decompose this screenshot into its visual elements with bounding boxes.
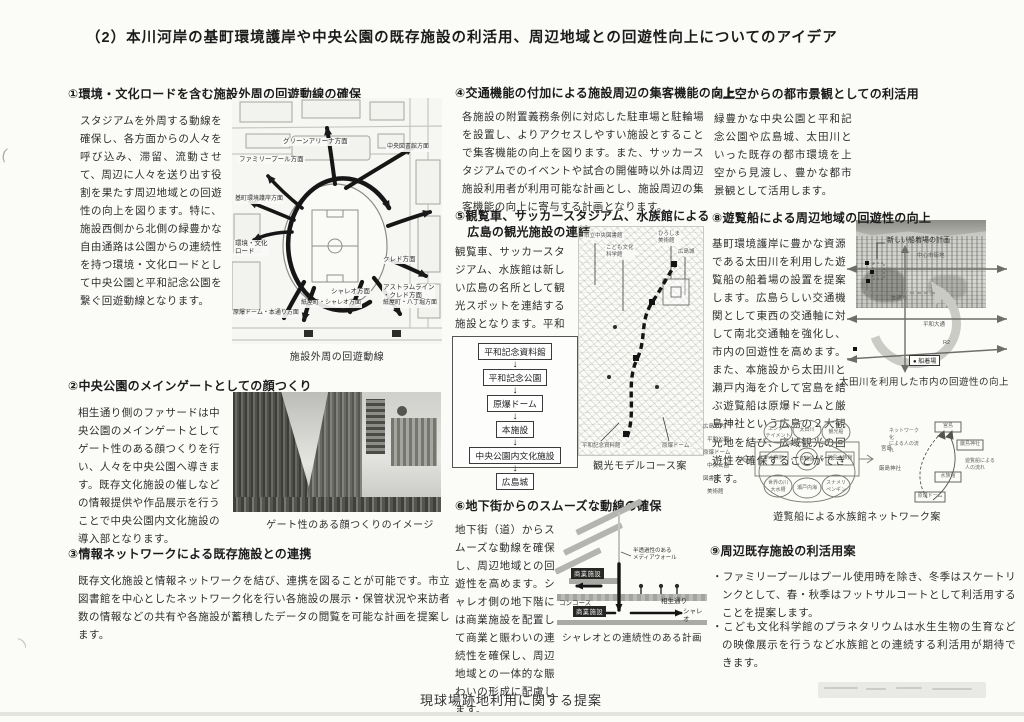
flow-arrow: ↓ bbox=[513, 412, 518, 421]
network-left-node: 原爆ドーム bbox=[703, 450, 730, 457]
stamp-mark bbox=[932, 688, 972, 690]
photo-tower bbox=[366, 399, 385, 454]
network-flow-box: 原爆ドーム bbox=[915, 493, 945, 500]
label-new-pier: 新しい船着場の計画 bbox=[887, 237, 950, 246]
section2-body: 相生通り側のファサードは中央公園のメインゲートとしてゲート性のある顔つくりを行い… bbox=[78, 404, 220, 548]
label-commercial-lower: 商業施設 bbox=[573, 606, 606, 617]
model-course-route bbox=[579, 227, 703, 455]
network-box-left: 新水族館 bbox=[760, 455, 788, 462]
network-caption: 遊覧船による水族館ネットワーク案 bbox=[742, 508, 972, 523]
map2-label-museum: ひろしま 美術館 bbox=[657, 231, 681, 246]
stadium-circulation-map: グリーンアリーナ方面 中央図書館方面 ファミリープール方面 基町環境護岸方面 環… bbox=[232, 98, 442, 344]
section4-body: 各施設の附置義務条例に対応した駐車場と駐輪場を設置し、よりアクセスしやすい施設と… bbox=[462, 108, 704, 216]
aquarium-network-diagram: 広島市内 平和公園 原爆ドーム 中央公園 図書館 美術館 宮島 厳島神社 新水族… bbox=[703, 420, 1013, 508]
map1-label-green-arena: グリーンアリーナ方面 bbox=[282, 138, 349, 146]
map1-label-kamiyacho-hatchobori: 紙屋町・八丁堀方面 bbox=[382, 300, 438, 308]
section3-body: 既存文化施設と情報ネットワークを結び、連携を図ることが可能です。市立図書館を中心… bbox=[78, 572, 450, 644]
page-title: （2）本川河岸の基町環境護岸や中央公園の既存施設の利活用、周辺地域との回遊性向上… bbox=[86, 26, 838, 47]
map1-label-motomachi: 基町環境護岸方面 bbox=[234, 196, 284, 204]
map1-label-kamiyacho-chareo: 紙屋町・シャレオ方面 bbox=[300, 300, 362, 308]
photo2-caption: ゲート性のある顔つくりのイメージ bbox=[250, 516, 450, 531]
network-flow-annotation: ネットワーク化 による人の流れ bbox=[889, 428, 923, 454]
network-ellipse-label: 太田川 bbox=[793, 427, 821, 434]
label-hondori: 本通り bbox=[891, 296, 908, 303]
network-left-node: 中央公園 bbox=[707, 463, 729, 470]
section4-heading: ④交通機能の付加による施設周辺の集客機能の向上 bbox=[455, 85, 736, 101]
section3-heading: ③情報ネットワークによる既存施設との連携 bbox=[68, 546, 312, 562]
flow-step-1: 平和記念資料館 bbox=[478, 343, 552, 360]
scan-bottom-edge bbox=[0, 712, 1024, 716]
scanned-proposal-page: （2）本川河岸の基町環境護岸や中央公園の既存施設の利活用、周辺地域との回遊性向上… bbox=[0, 0, 1024, 722]
gate-facade-photo bbox=[233, 392, 441, 512]
flow-arrow: ↓ bbox=[513, 464, 518, 473]
network-ellipse-label: 世界の川 大水槽 bbox=[764, 480, 792, 493]
network-left-node: 図書館 bbox=[703, 476, 720, 483]
section9-bullet-2: ・こども文化科学館のプラネタリウムは水生生物の生育などの映像展示を行うなど水族館… bbox=[712, 618, 1016, 672]
network-ellipse-label: スナメリ ペンギン bbox=[822, 480, 850, 493]
network-left-node: 広島市内 bbox=[703, 424, 725, 431]
model-course-map: 市立中央図書館 こども文化 科学館 ひろしま 美術館 広島城 平和記念資料館 原… bbox=[578, 226, 704, 456]
network-left-node: 平和公園 bbox=[707, 437, 729, 444]
map1-label-astram: アストラムライン ・クレド方面 bbox=[382, 284, 435, 300]
label-chareo: シャレオ bbox=[683, 608, 707, 624]
network-box-center: 本施設 bbox=[795, 456, 819, 463]
stamp-mark bbox=[824, 687, 858, 689]
river-circulation-diagram: 新しい船着場の計画 中心市街地 本通り 平和大通 R2 ● 船着場 bbox=[843, 223, 1011, 373]
footer-title: 現球場跡地利用に関する提案 bbox=[420, 690, 602, 709]
map2-label-castle: 広島城 bbox=[677, 249, 696, 256]
photo-crowd-strip bbox=[233, 497, 441, 512]
map1-label-family-pool: ファミリープール方面 bbox=[238, 156, 305, 164]
map2-caption: 観光モデルコース案 bbox=[574, 457, 706, 472]
scan-mark: ( bbox=[0, 146, 8, 164]
pier-legend: ● 船着場 bbox=[909, 355, 940, 366]
flow-arrow: ↓ bbox=[513, 360, 518, 369]
flow-arrow: ↓ bbox=[513, 438, 518, 447]
section6-caption: シャレオとの連続性のある計画 bbox=[550, 630, 714, 644]
label-route2: R2 bbox=[943, 340, 950, 347]
section1-body: スタジアムを外周する動線を確保し、各方面からの人々を呼び込み、滞留、流動させて、… bbox=[80, 112, 222, 311]
network-left-node: 美術館 bbox=[707, 489, 724, 496]
network-ellipse-label: 観光船 bbox=[822, 429, 850, 436]
section7-body: 緑豊かな中央公園と平和記念公園や広島城、太田川といった既存の都市環境を上空から見… bbox=[714, 110, 852, 200]
section7-heading: ⑦上空からの都市景観としての利活用 bbox=[712, 86, 919, 102]
map1-label-chareo: シャレオ方面 bbox=[330, 288, 371, 296]
label-center-city: 中心市街地 bbox=[917, 253, 945, 260]
network-flow-box: 厳島神社 bbox=[957, 441, 983, 448]
map1-label-culture-road: 環境・文化 ロード bbox=[234, 240, 269, 256]
map2-label-library: 市立中央図書館 bbox=[583, 233, 624, 240]
network-ellipse-label: 瀬戸内海 bbox=[793, 485, 821, 492]
map2-label-memorial: 平和記念資料館 bbox=[581, 443, 622, 450]
flow-step-3: 原爆ドーム bbox=[487, 395, 543, 412]
underground-section-diagram: 半透過性のある メディアウォール 商業施設 コンコース 相生通り 商業施設 シャ… bbox=[557, 512, 707, 626]
label-media-wall: 半透過性のある メディアウォール bbox=[633, 548, 677, 563]
river-diagram-caption: 太田川を利用した市内の回遊性の向上 bbox=[834, 374, 1014, 388]
map1-label-credo: クレド方面 bbox=[382, 256, 417, 264]
map1-label-dome-hondori: 原爆ドーム・本通り方面 bbox=[232, 310, 300, 318]
stamp-mark bbox=[866, 688, 886, 690]
map2-label-dome: 原爆ドーム bbox=[661, 443, 690, 450]
flow-step-6: 広島城 bbox=[496, 473, 534, 490]
network-flow-box: 宮島 bbox=[935, 423, 961, 430]
scan-mark: ) bbox=[16, 634, 29, 648]
faint-stamp bbox=[818, 682, 986, 698]
section9-bullet-1: ・ファミリープールはプール使用時を除き、冬季はスケートリンクとして、春・秋季はフ… bbox=[712, 568, 1016, 622]
label-peace-blvd: 平和大通 bbox=[923, 322, 945, 329]
label-aioi-street: 相生通り bbox=[661, 598, 687, 606]
map1-label-library: 中央図書館方面 bbox=[386, 144, 430, 152]
network-flow-annotation: 遊覧船による 人の流れ bbox=[965, 458, 999, 471]
photo-mid-building bbox=[391, 418, 437, 466]
flow-step-2: 平和記念公園 bbox=[483, 369, 548, 386]
map2-label-science: こども文化 科学館 bbox=[605, 245, 635, 260]
network-flow-box: 水族館 bbox=[935, 473, 961, 480]
map1-caption: 施設外周の回遊動線 bbox=[232, 348, 442, 363]
flow-step-4: 本施設 bbox=[496, 421, 534, 438]
network-right-node: 厳島神社 bbox=[879, 466, 901, 473]
course-flowchart: 平和記念資料館 ↓ 平和記念公園 ↓ 原爆ドーム ↓ 本施設 ↓ 中央公園内文化… bbox=[452, 336, 578, 468]
section9-heading: ⑨周辺既存施設の利活用案 bbox=[710, 543, 856, 559]
stamp-mark bbox=[896, 687, 922, 689]
flow-step-5: 中央公園内文化施設 bbox=[469, 447, 560, 464]
network-box-right: 宮島水族館 bbox=[826, 455, 854, 462]
flow-arrow: ↓ bbox=[513, 386, 518, 395]
network-ellipse-label: エンター テイメント bbox=[764, 426, 792, 439]
label-commercial-upper: 商業施設 bbox=[571, 568, 604, 579]
